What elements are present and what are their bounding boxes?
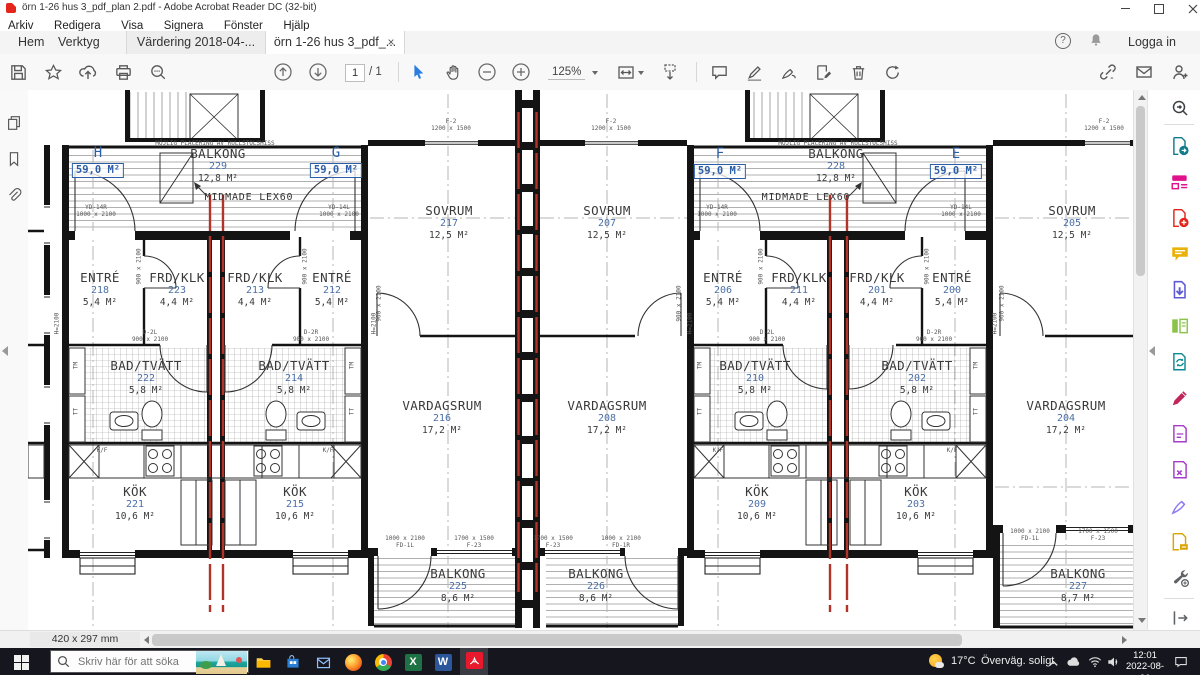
create-pdf-icon[interactable] [1170,208,1190,228]
delete-button[interactable] [844,58,872,86]
minimize-button[interactable] [1112,3,1138,14]
next-page-button[interactable] [304,58,332,86]
taskbar-search-input[interactable] [76,655,200,669]
floorplan-drawing [28,90,1133,630]
zoom-out-button[interactable] [473,58,501,86]
save-button[interactable] [4,58,32,86]
excel-icon[interactable]: X [402,651,424,673]
share-person-button[interactable] [1166,58,1194,86]
menu-bar: Arkiv Redigera Visa Signera Fönster Hjäl… [0,16,1200,31]
microsoft-store-icon[interactable] [282,651,304,673]
compress-pdf-icon[interactable] [1170,280,1190,300]
page-size-label: 420 x 297 mm [30,632,140,647]
close-button[interactable] [1180,3,1200,14]
edit-pdf-icon[interactable] [1170,172,1190,192]
onedrive-icon[interactable] [1066,655,1081,673]
sail-shape [216,654,226,666]
tray-temperature[interactable]: 17°C [951,655,976,667]
tray-chevron-icon[interactable] [1048,656,1059,674]
tray-clock[interactable]: 12:01 2022-08-26 [1124,650,1166,675]
acrobat-app-icon [6,3,16,13]
certificates-icon[interactable] [1170,496,1190,516]
fill-sign-button[interactable] [809,58,837,86]
fit-caret-icon[interactable] [638,71,644,75]
taskbar: X W 17°C Överväg. soligt 12:01 [0,648,1200,675]
request-signatures-icon[interactable] [1170,460,1190,480]
word-icon[interactable]: W [432,651,454,673]
collapse-right-panel-icon[interactable] [1149,346,1155,356]
print-button[interactable] [109,58,137,86]
weather-icon[interactable] [928,653,945,670]
search-highlights-widget[interactable] [196,651,247,674]
rotate-button[interactable] [878,58,906,86]
bush-shape [200,661,212,669]
scroll-left-icon[interactable] [144,636,149,644]
page-total-label: / 1 [369,66,382,78]
title-bar: örn 1-26 hus 3_pdf_plan 2.pdf - Adobe Ac… [0,0,1200,16]
organize-pages-icon[interactable] [1170,316,1190,336]
acrobat-taskbar-active[interactable] [460,648,488,675]
hand-tool-button[interactable] [439,58,467,86]
kitchen-fixtures [28,445,986,545]
search-tools-icon[interactable] [1170,98,1190,118]
attachments-icon[interactable] [5,186,23,204]
vertical-scroll-thumb[interactable] [1136,106,1145,276]
scroll-right-icon[interactable] [1122,636,1127,644]
page-thumbnails-icon[interactable] [5,114,23,132]
collapse-left-panel-icon[interactable] [2,346,8,356]
sign-tool-button[interactable] [775,58,803,86]
tray-time: 12:01 [1124,650,1166,661]
wifi-icon[interactable] [1088,655,1102,673]
document-canvas[interactable]: H59,0 M² G59,0 M² F59,0 M² E59,0 M² BALK… [28,90,1133,630]
horizontal-scrollbar[interactable]: 420 x 297 mm [0,630,1200,649]
file-explorer-icon[interactable] [252,651,274,673]
help-icon[interactable]: ? [1055,33,1071,49]
ball-shape [236,657,242,663]
search-button[interactable] [144,58,172,86]
star-button[interactable] [39,58,67,86]
share-cloud-button[interactable] [74,58,102,86]
comment-tool-button[interactable] [705,58,733,86]
share-link-button[interactable] [1094,58,1122,86]
fit-width-button[interactable] [612,58,640,86]
volume-icon[interactable] [1107,655,1121,673]
page-scrolling-button[interactable] [656,58,684,86]
more-tools-icon[interactable] [1170,568,1190,588]
zoom-in-button[interactable] [507,58,535,86]
tab-document-inactive[interactable]: Värdering 2018-04-... [126,31,265,54]
export-pdf-icon[interactable] [1170,136,1190,156]
vertical-scrollbar[interactable] [1133,90,1148,630]
firewall-ticks [522,100,533,608]
comment-panel-icon[interactable] [1170,244,1190,264]
email-button[interactable] [1130,58,1158,86]
convert-pdf-icon[interactable] [1170,352,1190,372]
taskbar-search[interactable] [50,650,249,673]
tab-bar: Hem Verktyg Värdering 2018-04-... örn 1-… [0,31,1200,55]
close-icon [1188,4,1198,14]
scroll-down-icon[interactable] [1138,618,1146,623]
highlight-tool-button[interactable] [740,58,768,86]
login-button[interactable]: Logga in [1128,35,1176,49]
bookmarks-icon[interactable] [5,150,23,168]
notifications-bell-icon[interactable] [1088,32,1104,48]
left-panel-rail [0,90,29,630]
expand-panel-icon[interactable] [1170,608,1190,628]
mail-icon[interactable] [312,651,334,673]
action-center-icon[interactable] [1174,655,1188,673]
page-number-input[interactable]: 1 [345,64,365,82]
select-tool-button[interactable] [404,58,432,86]
tab-hem[interactable]: Hem [18,31,44,54]
firefox-icon[interactable] [342,651,364,673]
zoom-caret-icon[interactable] [592,71,598,75]
window-title: örn 1-26 hus 3_pdf_plan 2.pdf - Adobe Ac… [22,2,317,13]
tab-close-icon[interactable]: × [384,33,398,51]
stamp-icon[interactable] [1170,532,1190,552]
tab-verktyg[interactable]: Verktyg [58,31,100,54]
acrobat-icon [466,652,483,669]
prepare-form-icon[interactable] [1170,424,1190,444]
zoom-level-dropdown[interactable]: 125% [548,66,585,80]
fill-sign-panel-icon[interactable] [1170,388,1190,408]
horizontal-scroll-thumb[interactable] [152,634,962,646]
scroll-up-icon[interactable] [1138,95,1146,100]
tools-panel [1147,90,1200,630]
tray-date: 2022-08-26 [1124,661,1166,675]
tray-weather-text[interactable]: Överväg. soligt [981,655,1054,667]
desktop: örn 1-26 hus 3_pdf_plan 2.pdf - Adobe Ac… [0,0,1200,675]
maximize-button[interactable] [1146,3,1172,14]
chrome-icon[interactable] [372,651,394,673]
toolbar: 1 / 1 125% [0,54,1200,91]
previous-page-button[interactable] [269,58,297,86]
search-icon [57,655,70,668]
start-button[interactable] [14,655,29,670]
